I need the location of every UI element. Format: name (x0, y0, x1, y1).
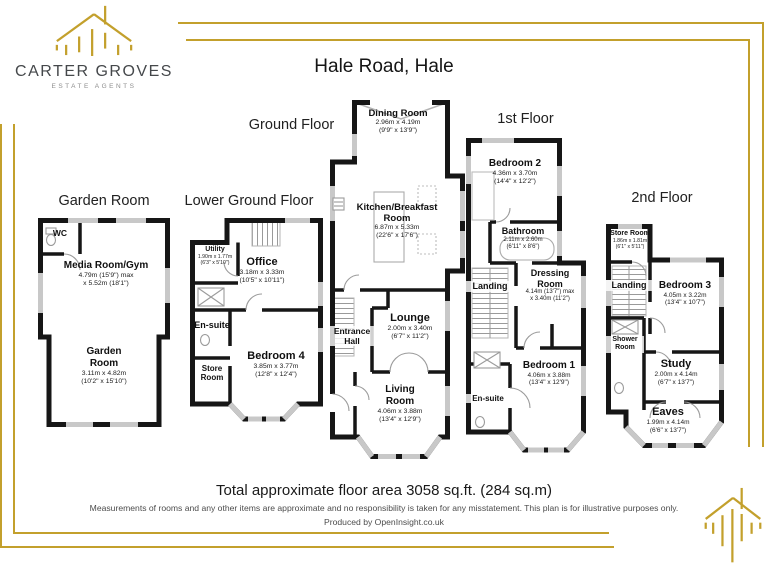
windows (41, 221, 168, 425)
room-label-bedroom2: Bedroom 2 4.36m x 3.70m (14'4" x 12'2") (478, 158, 552, 186)
frame-left-outer (0, 124, 2, 548)
produced-by-text: Produced by OpenInsight.co.uk (20, 517, 748, 527)
room-label-landing-second: Landing (606, 280, 652, 291)
room-label-dressing-room: Dressing Room 4.14m (13'7") max x 3.40m … (520, 268, 580, 303)
room-label-eaves: Eaves 1.99m x 4.14m (6'6" x 13'7") (632, 406, 704, 434)
second-floor-plan: Store Room 1.86m x 1.81m (6'1" x 5'11") … (604, 222, 732, 462)
stairs (252, 222, 280, 246)
room-label-study: Study 2.00m x 4.14m (6'7" x 13'7") (642, 358, 710, 386)
footer: Total approximate floor area 3058 sq.ft.… (20, 482, 748, 527)
garden-room-plan-drawing (38, 218, 170, 427)
room-label-bathroom: Bathroom 2.11m x 2.60m (6'11" x 8'6") (492, 226, 554, 251)
room-label-store-second: Store Room 1.86m x 1.81m (6'1" x 5'11") (610, 230, 650, 251)
second-floor-label: 2nd Floor (614, 190, 710, 206)
room-label-office: Office 3.18m x 3.33m (10'5" x 10'11") (218, 256, 306, 285)
lower-ground-floor-plan: Utility 1.90m x 1.77m (6'3" x 5'10") Off… (190, 218, 323, 422)
total-floor-area: Total approximate floor area 3058 sq.ft.… (20, 482, 748, 499)
room-label-garden-room: Garden Room 3.11m x 4.82m (10'2" x 15'10… (78, 346, 130, 386)
first-floor-plan: Bedroom 2 4.36m x 3.70m (14'4" x 12'2") … (466, 136, 592, 462)
ground-floor-plan: Dining Room 2.96m x 4.19m (9'9" x 13'9")… (330, 86, 465, 464)
frame-right-inner (748, 39, 750, 447)
frame-bottom-outer (0, 546, 614, 548)
frame-left-inner (13, 124, 15, 534)
room-label-shower-room: Shower Room (606, 336, 644, 353)
room-label-bedroom4: Bedroom 4 3.85m x 3.77m (12'8" x 12'4") (232, 350, 320, 379)
room-label-ensuite-lower: En-suite (190, 320, 234, 331)
frame-right-outer (762, 22, 764, 447)
disclaimer-text: Measurements of rooms and any other item… (20, 503, 748, 513)
corner-house-icon (702, 486, 764, 568)
frame-bottom-inner (13, 532, 609, 534)
frame-top-outer (178, 22, 764, 24)
walls (41, 221, 168, 425)
room-label-ensuite-first: En-suite (466, 394, 510, 403)
brand-tagline: ESTATE AGENTS (10, 83, 178, 90)
room-label-kitchen: Kitchen/Breakfast Room 6.87m x 5.33m (22… (345, 202, 449, 240)
room-label-dining: Dining Room 2.96m x 4.19m (9'9" x 13'9") (363, 108, 433, 135)
first-floor-label: 1st Floor (478, 111, 573, 127)
garden-room-plan: WC Media Room/Gym 4.79m (15'9") max x 5.… (38, 218, 170, 427)
room-label-media-room: Media Room/Gym 4.79m (15'9") max x 5.52m… (62, 260, 150, 288)
room-label-entrance-hall: Entrance Hall (330, 326, 374, 346)
brand-house-icon (46, 4, 142, 56)
stairs (612, 266, 646, 316)
windows (230, 221, 321, 420)
stairs (472, 268, 508, 338)
room-label-store-lower: Store Room (194, 364, 230, 383)
room-label-lounge: Lounge 2.00m x 3.40m (6'7" x 11'2") (374, 312, 446, 341)
room-label-bedroom3: Bedroom 3 4.05m x 3.22m (13'4" x 10'7") (650, 280, 720, 307)
room-label-bedroom1: Bedroom 1 4.06m x 3.88m (13'4" x 12'9") (516, 360, 582, 387)
garden-floor-label: Garden Room (38, 193, 170, 209)
room-label-landing-first: Landing (466, 281, 514, 292)
frame-top-inner (186, 39, 750, 41)
room-label-living-room: Living Room 4.06m x 3.88m (13'4" x 12'9"… (372, 384, 428, 424)
lower-floor-label: Lower Ground Floor (165, 193, 333, 209)
floorplan-page: CARTER GROVES ESTATE AGENTS Hale Road, H… (0, 0, 768, 576)
page-title: Hale Road, Hale (0, 56, 768, 78)
room-label-wc: WC (42, 228, 78, 238)
